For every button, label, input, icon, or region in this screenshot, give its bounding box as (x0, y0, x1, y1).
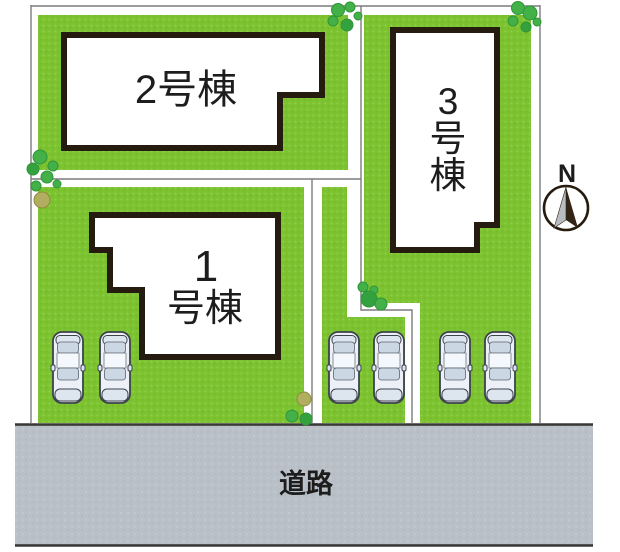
car-icon (327, 332, 361, 403)
car-icon (372, 332, 406, 403)
car-icon (438, 332, 472, 403)
site-plan: 2号棟 3 号 棟 1 号棟 (0, 0, 620, 552)
building-2-label: 2号棟 (135, 68, 237, 112)
building-1-label-suffix: 号棟 (167, 288, 243, 330)
car-icon (51, 332, 85, 403)
building-3-label-char3: 棟 (430, 155, 467, 196)
road-label: 道路 (279, 468, 334, 499)
building-1-label-number: 1 (194, 242, 218, 291)
building-3-label-char2: 号 (430, 118, 467, 159)
building-3-label-char1: 3 (438, 81, 459, 122)
car-icon (98, 332, 132, 403)
compass-needle-left (554, 187, 566, 228)
compass-needle-right (566, 187, 578, 228)
north-compass-icon: N (544, 160, 588, 230)
site-plan-canvas: 2号棟 3 号 棟 1 号棟 (0, 0, 620, 552)
north-label: N (558, 160, 576, 188)
car-icon (483, 332, 517, 403)
